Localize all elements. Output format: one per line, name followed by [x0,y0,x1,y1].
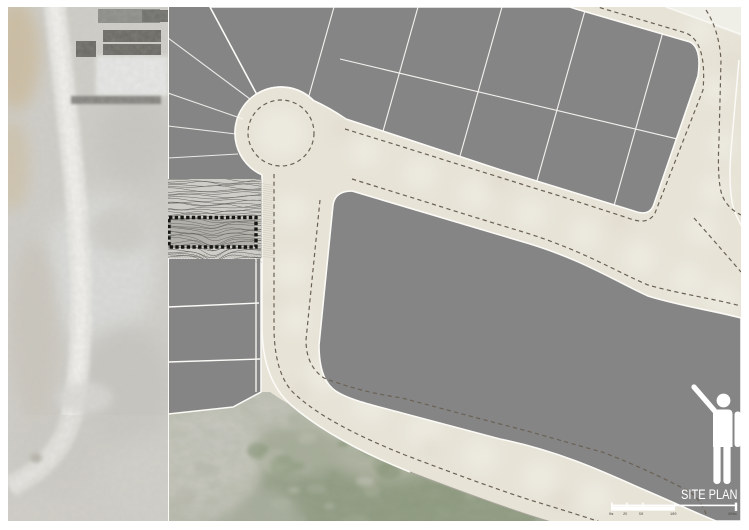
svg-text:0m: 0m [609,513,613,517]
svg-text:100: 100 [670,513,676,517]
svg-text:SITE PLAN: SITE PLAN [681,486,738,502]
svg-text:200m: 200m [728,513,737,517]
svg-text:50: 50 [639,513,643,517]
svg-text:25: 25 [623,513,627,517]
